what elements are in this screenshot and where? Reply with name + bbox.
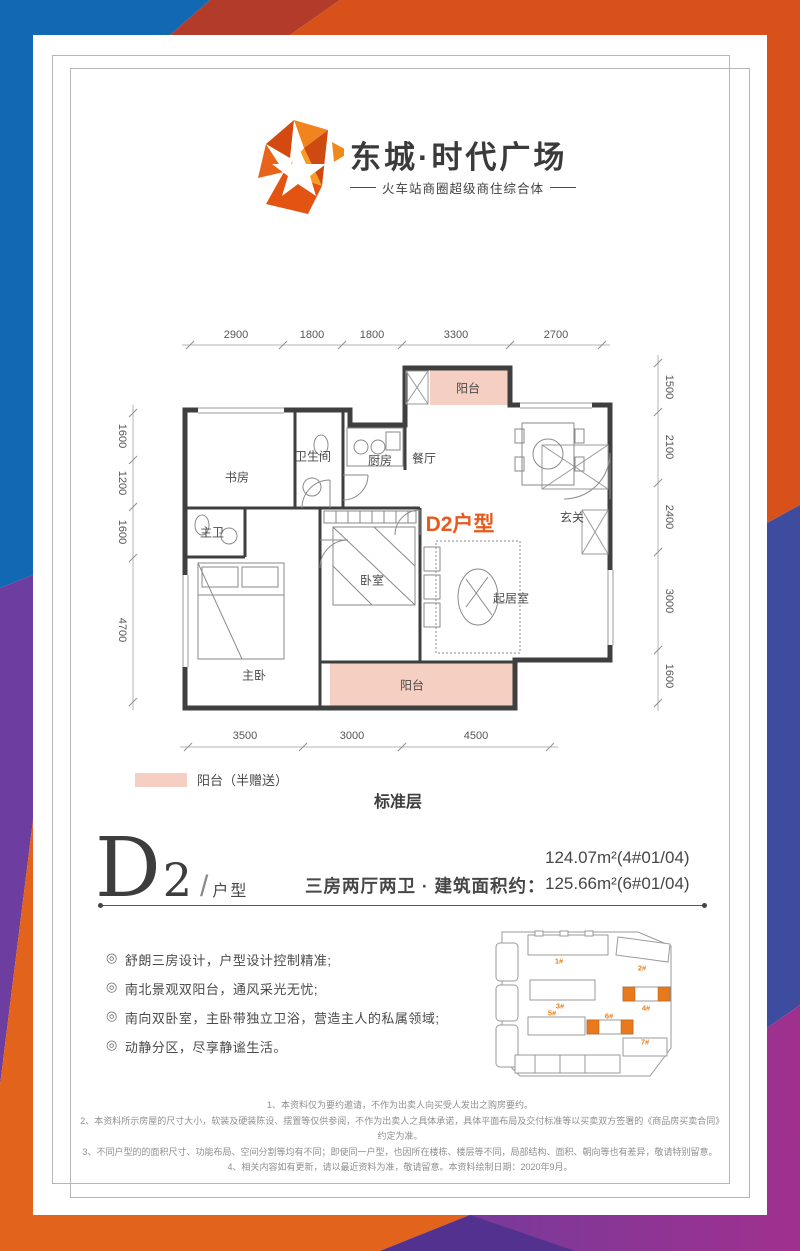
legend-label: 阳台（半赠送）: [197, 770, 288, 789]
room-label-dining: 餐厅: [412, 450, 436, 467]
subtitle-dash-right: [550, 187, 576, 188]
bullet-icon: ◎: [106, 950, 118, 966]
building-label: 7#: [641, 1038, 649, 1047]
feature-item: ◎ 南北景观双阳台，通风采光无忧;: [106, 979, 439, 998]
building-label: 1#: [555, 957, 563, 966]
sitemap-drawing: [490, 928, 680, 1088]
building-label: 6#: [605, 1012, 613, 1021]
dim-label: 1800: [360, 329, 384, 341]
section-divider: [100, 905, 705, 906]
feature-item: ◎ 动静分区，尽享静谧生活。: [106, 1037, 439, 1056]
feature-text: 南北景观双阳台，通风采光无忧;: [125, 979, 318, 998]
dim-label: 2900: [224, 329, 248, 341]
room-label-balcony-bottom: 阳台: [400, 677, 424, 694]
unit-name: D 2 / 户型: [95, 834, 248, 907]
room-label-kitchen: 厨房: [368, 452, 392, 469]
room-label-master-bath: 主卫: [200, 524, 224, 541]
building-label: 3#: [556, 1002, 564, 1011]
dim-label: 3000: [340, 730, 364, 742]
flyer-page: 东城·时代广场 火车站商圈超级商住综合体: [0, 0, 800, 1251]
logo: 东城·时代广场 火车站商圈超级商住综合体: [258, 120, 558, 220]
legend: 阳台（半赠送）: [135, 770, 288, 789]
legend-swatch: [135, 773, 187, 787]
dim-label: 3500: [233, 730, 257, 742]
dim-label: 1600: [663, 664, 675, 688]
divider-dot: [702, 903, 707, 908]
dim-label: 2700: [544, 329, 568, 341]
dim-label: 1600: [116, 424, 128, 448]
feature-item: ◎ 南向双卧室，主卧带独立卫浴，营造主人的私属领域;: [106, 1008, 439, 1027]
feature-text: 舒朗三房设计，户型设计控制精准;: [125, 950, 332, 969]
unit-slash: /: [200, 870, 208, 904]
unit-area-line: 124.07m²(4#01/04): [545, 845, 690, 871]
dim-label: 3000: [663, 589, 675, 613]
feature-text: 动静分区，尽享静谧生活。: [125, 1037, 287, 1056]
room-label-master-bedroom: 主卧: [242, 667, 266, 684]
floorplan-drawing: [90, 295, 710, 775]
logo-subtitle: 火车站商圈超级商住综合体: [382, 178, 544, 197]
dim-label: 1600: [116, 520, 128, 544]
building-label: 4#: [642, 1004, 650, 1013]
dim-label: 1200: [116, 471, 128, 495]
feature-text: 南向双卧室，主卧带独立卫浴，营造主人的私属领域;: [125, 1008, 440, 1027]
logo-mark-icon: [258, 120, 344, 216]
unit-info: D 2 / 户型 三房两厅两卫 · 建筑面积约： 124.07m²(4#01/0…: [95, 833, 710, 913]
decor-indigo: [767, 505, 800, 1028]
unit-number: 2: [163, 853, 192, 907]
room-label-bedroom: 卧室: [360, 572, 384, 589]
building-label: 2#: [638, 964, 646, 973]
dim-label: 1500: [663, 375, 675, 399]
building-label: 5#: [548, 1009, 556, 1018]
dim-label: 2100: [663, 435, 675, 459]
unit-areas: 124.07m²(4#01/04) 125.66m²(6#01/04): [545, 845, 690, 897]
room-label-living: 起居室: [493, 590, 529, 607]
unit-suffix: 户型: [212, 877, 248, 901]
logo-subtitle-row: 火车站商圈超级商住综合体: [350, 178, 560, 197]
floor-label: 标准层: [374, 788, 422, 812]
floorplan: 书房 卫生间 厨房 餐厅 阳台 玄关 主卫 卧室 起居室 主卧 阳台 D2户型 …: [90, 295, 710, 775]
sitemap: 1# 2# 3# 4# 5# 6# 7#: [490, 928, 680, 1088]
unit-area-line: 125.66m²(6#01/04): [545, 871, 690, 897]
room-label-foyer: 玄关: [560, 509, 584, 526]
divider-dot: [98, 903, 103, 908]
disclaimers: 1、本资料仅为要约邀请，不作为出卖人向买受人发出之购房要约。 2、本资料所示房屋…: [80, 1098, 720, 1176]
dim-label: 4500: [464, 730, 488, 742]
unit-letter: D: [95, 834, 161, 904]
disclaimer-line: 3、不同户型的的面积尺寸、功能布局、空间分割等均有不同；即使同一户型，也因所在楼…: [80, 1145, 720, 1161]
subtitle-dash-left: [350, 187, 376, 188]
unit-desc: 三房两厅两卫 · 建筑面积约：: [305, 873, 546, 898]
logo-title: 东城·时代广场: [350, 132, 567, 177]
feature-item: ◎ 舒朗三房设计，户型设计控制精准;: [106, 950, 439, 969]
unit-tag: D2户型: [426, 508, 495, 538]
disclaimer-line: 2、本资料所示房屋的尺寸大小，软装及硬装陈设、摆置等仅供参阅，不作为出卖人之具体…: [80, 1114, 720, 1145]
disclaimer-line: 4、相关内容如有更新，请以最近资料为准，敬请留意。本资料绘制日期：2020年9月…: [80, 1160, 720, 1176]
dim-label: 2400: [663, 505, 675, 529]
bullet-icon: ◎: [106, 979, 118, 995]
dim-label: 1800: [300, 329, 324, 341]
dim-label: 3300: [444, 329, 468, 341]
dim-label: 4700: [116, 618, 128, 642]
room-label-balcony-top: 阳台: [456, 380, 480, 397]
disclaimer-line: 1、本资料仅为要约邀请，不作为出卖人向买受人发出之购房要约。: [80, 1098, 720, 1114]
bullet-icon: ◎: [106, 1008, 118, 1024]
feature-list: ◎ 舒朗三房设计，户型设计控制精准; ◎ 南北景观双阳台，通风采光无忧; ◎ 南…: [106, 950, 439, 1066]
bullet-icon: ◎: [106, 1037, 118, 1053]
room-label-bath: 卫生间: [295, 448, 331, 465]
room-label-study: 书房: [225, 469, 249, 486]
